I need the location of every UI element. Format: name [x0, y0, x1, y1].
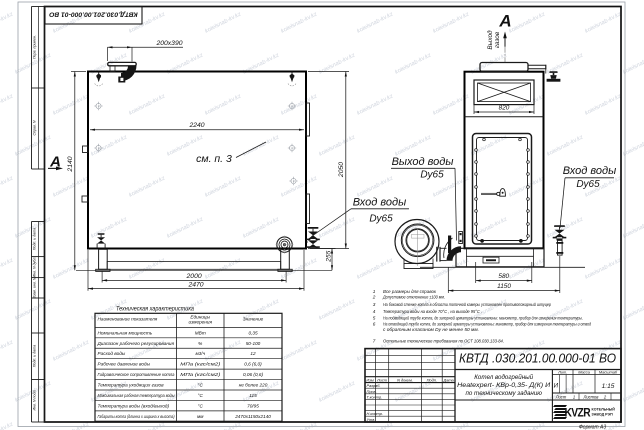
- svg-text:Подп.: Подп.: [427, 377, 437, 382]
- svg-text:Утв.: Утв.: [367, 417, 376, 422]
- svg-text:Формат А3: Формат А3: [579, 424, 607, 430]
- svg-text:Н.контр.: Н.контр.: [367, 411, 383, 416]
- svg-text:Наименование показателя: Наименование показателя: [98, 317, 158, 322]
- svg-text:Допустимое отклонение ±100 мм: Допустимое отклонение ±100 мм.: [382, 295, 445, 300]
- svg-text:Диапазон рабочего регулировани: Диапазон рабочего регулирования: [97, 341, 175, 346]
- svg-text:Разраб.: Разраб.: [367, 383, 381, 388]
- svg-text:газов: газов: [494, 31, 501, 48]
- svg-text:2140: 2140: [67, 156, 74, 172]
- svg-text:Подп. и дата: Подп. и дата: [33, 345, 37, 368]
- svg-text:7: 7: [373, 338, 376, 343]
- svg-text:с обратным клапаном Dу не мен: с обратным клапаном Dу не менее 50 мм.: [383, 327, 479, 332]
- svg-text:1: 1: [373, 289, 376, 294]
- svg-text:МПа (кгс/см2): МПа (кгс/см2): [180, 362, 221, 367]
- svg-text:Максимальная рабочая температу: Максимальная рабочая температура воды: [98, 393, 175, 398]
- svg-text:Dy65: Dy65: [420, 170, 444, 181]
- svg-text:5: 5: [373, 315, 376, 320]
- svg-text:Изм: Изм: [366, 377, 374, 382]
- svg-text:820: 820: [499, 105, 510, 112]
- svg-text:KVZR: KVZR: [565, 406, 591, 420]
- svg-text:ЗАВОД РЭП: ЗАВОД РЭП: [592, 413, 614, 417]
- svg-text:На подводящей трубе котла, до: На подводящей трубе котла, до запорной а…: [383, 314, 583, 320]
- svg-text:Расход воды: Расход воды: [98, 351, 126, 356]
- svg-text:Гидравлическое сопротивление к: Гидравлическое сопротивление котла: [98, 372, 175, 377]
- svg-text:Инв. N подл.: Инв. N подл.: [33, 389, 37, 410]
- svg-text:255: 255: [325, 250, 332, 262]
- svg-text:по техническому заданию: по техническому заданию: [465, 390, 542, 397]
- svg-text:0,35: 0,35: [248, 330, 258, 335]
- svg-text:КВТД .030.201.00.000-01 ВО: КВТД .030.201.00.000-01 ВО: [459, 351, 616, 366]
- svg-text:Перв. примен.: Перв. примен.: [33, 35, 37, 59]
- svg-text:Масштаб: Масштаб: [599, 369, 618, 374]
- svg-text:Температура воды на входе 70°: Температура воды на входе 70°С , на выхо…: [383, 309, 482, 314]
- svg-text:Дата: Дата: [442, 377, 454, 382]
- svg-text:Вход воды: Вход воды: [563, 165, 616, 177]
- svg-text:Котел водогрейный: Котел водогрейный: [474, 374, 533, 381]
- svg-text:Значение: Значение: [243, 317, 264, 322]
- svg-text:580: 580: [498, 273, 509, 280]
- svg-text:Температура уходящих газов: Температура уходящих газов: [98, 382, 165, 387]
- svg-text:°С: °С: [198, 403, 204, 408]
- svg-text:Пров.: Пров.: [367, 389, 377, 394]
- svg-text:6: 6: [373, 321, 376, 326]
- svg-text:Взам. инв. N: Взам. инв. N: [33, 277, 37, 298]
- svg-text:Dy65: Dy65: [369, 214, 393, 225]
- svg-text:2240: 2240: [188, 122, 204, 129]
- svg-text:2050: 2050: [338, 162, 345, 178]
- svg-text:КВТД.030.201.00.000-01 ВО: КВТД.030.201.00.000-01 ВО: [48, 11, 137, 18]
- svg-text:На боковой стенке котла в обла: На боковой стенке котла в области топочн…: [383, 301, 551, 307]
- svg-text:И: И: [554, 383, 559, 390]
- svg-text:2470х1150х2140: 2470х1150х2140: [234, 414, 271, 419]
- svg-text:На отводящей трубе котла, до з: На отводящей трубе котла, до запорной ар…: [383, 320, 591, 326]
- svg-text:Все размеры для справок: Все размеры для справок: [383, 289, 437, 294]
- svg-text:Лит.: Лит.: [557, 369, 567, 374]
- svg-text:измерения: измерения: [189, 320, 213, 325]
- svg-text:Инв. N дубл.: Инв. N дубл.: [33, 257, 37, 278]
- svg-text:Т.контр.: Т.контр.: [367, 394, 383, 399]
- svg-text:МПа (кгс/см2): МПа (кгс/см2): [180, 372, 221, 377]
- svg-text:МВт: МВт: [195, 330, 206, 335]
- svg-text:КОТЕЛЬНЫЙ: КОТЕЛЬНЫЙ: [592, 408, 616, 412]
- svg-text:Подп. и дата: Подп. и дата: [33, 228, 37, 251]
- svg-text:2000: 2000: [186, 273, 202, 280]
- svg-text:Габариты котла (длинна х ширин: Габариты котла (длинна х ширина х высота…: [98, 414, 175, 419]
- svg-text:0,06 (0,6): 0,06 (0,6): [243, 372, 264, 377]
- svg-text:70/95: 70/95: [247, 403, 259, 408]
- svg-text:2: 2: [372, 295, 376, 300]
- svg-text:Техническая характеристика: Техническая характеристика: [116, 306, 195, 312]
- svg-text:1: 1: [573, 395, 575, 400]
- svg-text:Dy65: Dy65: [576, 179, 600, 190]
- svg-text:Масса: Масса: [578, 369, 590, 374]
- svg-text:Лист: Лист: [376, 377, 388, 382]
- svg-text:Выход воды: Выход воды: [392, 156, 454, 168]
- svg-text:%: %: [198, 341, 202, 346]
- svg-text:2470: 2470: [187, 281, 203, 288]
- svg-text:50-100: 50-100: [246, 341, 261, 346]
- svg-text:115: 115: [249, 393, 257, 398]
- svg-text:Heatexpert- КВр-0,35- Д(К) И: Heatexpert- КВр-0,35- Д(К) И: [457, 382, 551, 389]
- svg-text:0,6 (6,0): 0,6 (6,0): [244, 362, 262, 367]
- svg-text:1:15: 1:15: [602, 383, 615, 390]
- svg-text:4: 4: [373, 309, 376, 314]
- svg-text:3: 3: [373, 302, 376, 307]
- svg-text:Справ. N: Справ. N: [33, 120, 37, 135]
- svg-text:1150: 1150: [497, 283, 511, 290]
- svg-text:Рабочее давление воды: Рабочее давление воды: [98, 362, 151, 367]
- svg-text:Остальные технические требован: Остальные технические требования по ОСТ …: [383, 338, 504, 343]
- svg-text:Выход: Выход: [486, 30, 494, 50]
- svg-text:Вход воды: Вход воды: [353, 197, 406, 209]
- svg-text:Лист: Лист: [555, 395, 567, 400]
- svg-text:А: А: [498, 12, 511, 31]
- svg-text:N докум.: N докум.: [397, 377, 413, 382]
- svg-text:Номинальная мощность: Номинальная мощность: [98, 330, 153, 335]
- svg-text:Единицы: Единицы: [190, 314, 210, 319]
- svg-text:м3/ч: м3/ч: [195, 351, 205, 356]
- svg-text:°С: °С: [198, 382, 204, 387]
- svg-text:12: 12: [250, 351, 256, 356]
- svg-text:Листов: Листов: [583, 395, 600, 400]
- svg-text:см. п. 3: см. п. 3: [196, 153, 232, 165]
- svg-text:Температура воды (вход/выход): Температура воды (вход/выход): [98, 403, 170, 408]
- svg-text:мм: мм: [197, 414, 204, 419]
- svg-text:°С: °С: [198, 393, 204, 398]
- svg-text:не более 220: не более 220: [239, 382, 268, 387]
- svg-text:200х390: 200х390: [155, 40, 183, 47]
